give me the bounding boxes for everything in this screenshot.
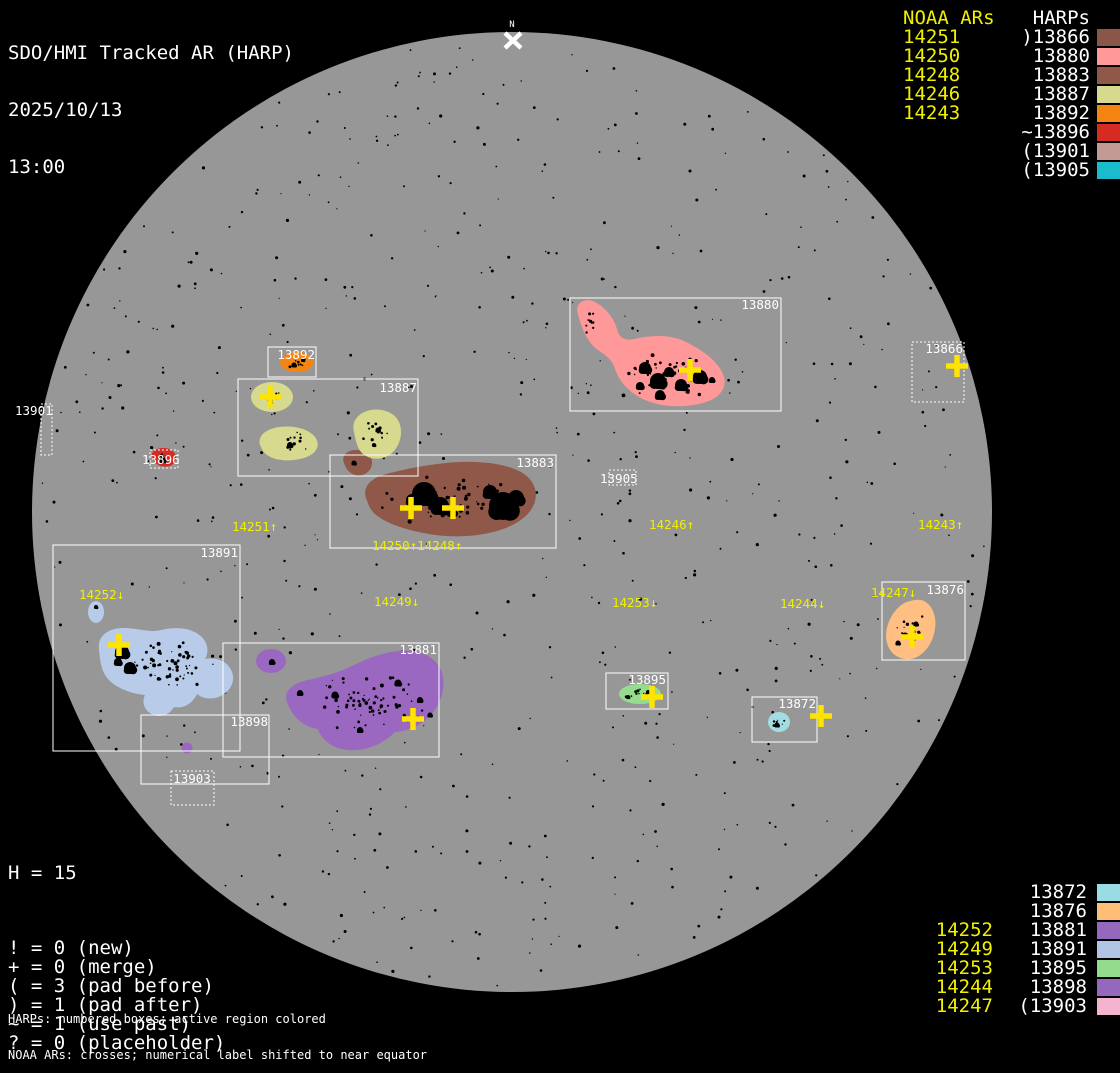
harp-box-label: 13903: [173, 771, 211, 786]
speckle: [234, 620, 237, 623]
speckle: [776, 644, 777, 645]
speckle: [847, 735, 849, 737]
speckle: [672, 253, 673, 254]
speckle: [747, 111, 749, 113]
speckle: [523, 268, 525, 270]
sunspot-speckle: [211, 655, 214, 658]
region-blob: [182, 743, 193, 754]
speckle: [632, 580, 634, 582]
speckle: [718, 848, 720, 850]
sunspot-speckle: [380, 699, 382, 701]
sunspot-umbra: [693, 376, 701, 384]
speckle: [294, 277, 296, 279]
speckle: [849, 673, 851, 675]
sunspot-speckle: [428, 512, 430, 514]
speckle: [347, 411, 350, 414]
speckle: [133, 451, 136, 454]
sunspot-speckle: [407, 693, 409, 695]
speckle: [459, 47, 461, 49]
speckle: [736, 531, 738, 533]
speckle: [349, 138, 351, 140]
speckle: [171, 325, 174, 328]
speckle: [54, 566, 55, 567]
speckle: [325, 278, 328, 281]
speckle: [547, 252, 550, 255]
speckle: [270, 334, 272, 336]
speckle: [586, 70, 588, 72]
speckle: [354, 297, 357, 300]
sunspot-speckle: [466, 506, 469, 509]
speckle: [322, 870, 324, 872]
speckle: [492, 628, 493, 629]
speckle: [834, 378, 836, 380]
sunspot-speckle: [363, 699, 366, 702]
sunspot-speckle: [408, 520, 412, 524]
sunspot-speckle: [906, 623, 909, 626]
sunspot-speckle: [299, 437, 302, 440]
speckle: [883, 275, 885, 277]
speckle: [119, 300, 120, 301]
speckle: [471, 648, 474, 651]
speckle: [654, 830, 657, 833]
color-swatch: [1097, 884, 1120, 901]
speckle: [348, 437, 351, 440]
sunspot-speckle: [342, 682, 344, 684]
speckle: [587, 391, 590, 394]
sunspot-speckle: [175, 677, 179, 681]
speckle: [849, 362, 852, 365]
sunspot-speckle: [305, 448, 306, 449]
sunspot-speckle: [651, 353, 655, 357]
sunspot-speckle: [187, 654, 190, 657]
speckle: [495, 166, 497, 168]
speckle: [507, 600, 510, 603]
speckle: [603, 780, 605, 782]
sunspot-speckle: [371, 438, 374, 441]
speckle: [613, 540, 615, 542]
speckle: [635, 451, 637, 453]
speckle: [116, 482, 118, 484]
speckle: [725, 153, 726, 154]
sunspot-speckle: [481, 503, 484, 506]
speckle: [241, 597, 243, 599]
speckle: [542, 170, 544, 172]
sunspot-speckle: [462, 479, 466, 483]
speckle: [288, 728, 290, 730]
speckle: [851, 830, 852, 831]
sunspot-speckle: [182, 678, 184, 680]
speckle: [329, 613, 331, 615]
speckle: [551, 677, 553, 679]
speckle: [938, 719, 940, 721]
speckle: [679, 234, 680, 235]
sunspot-speckle: [374, 423, 377, 426]
sunspot-speckle: [182, 655, 185, 658]
speckle: [556, 432, 558, 434]
speckle: [544, 918, 546, 920]
sunspot-speckle: [191, 672, 194, 675]
legend-bottom-right: 1387213876142521388114249138911425313895…: [933, 883, 1120, 1016]
sunspot-speckle: [447, 496, 450, 499]
speckle: [369, 813, 371, 815]
region-blob: [88, 601, 104, 623]
speckle: [394, 115, 396, 117]
speckle: [166, 567, 168, 569]
speckle: [298, 585, 300, 587]
sunspot-speckle: [373, 714, 375, 716]
speckle: [351, 286, 353, 288]
speckle: [655, 723, 657, 725]
speckle: [194, 287, 196, 289]
speckle: [479, 224, 481, 226]
sunspot-speckle: [695, 359, 698, 362]
speckle: [268, 469, 270, 471]
sunspot-umbra: [626, 697, 628, 699]
speckle: [166, 735, 167, 736]
speckle: [216, 372, 218, 374]
speckle: [343, 286, 346, 289]
speckle: [379, 788, 381, 790]
speckle: [834, 533, 836, 535]
speckle: [246, 563, 248, 565]
speckle: [896, 783, 898, 785]
speckle: [542, 558, 543, 559]
sunspot-speckle: [168, 667, 171, 670]
swatch-spacer: [1097, 10, 1120, 27]
speckle: [172, 231, 174, 233]
speckle: [949, 454, 951, 456]
speckle: [775, 680, 778, 683]
speckle: [175, 442, 176, 443]
sunspot-speckle: [189, 665, 190, 666]
speckle: [466, 795, 469, 798]
speckle: [279, 298, 280, 299]
speckle: [971, 593, 974, 596]
sunspot-speckle: [425, 476, 428, 479]
speckle: [93, 352, 95, 354]
speckle: [810, 655, 813, 658]
speckle: [578, 537, 581, 540]
speckle: [376, 140, 378, 142]
sunspot-umbra: [291, 365, 294, 368]
speckle: [526, 359, 527, 360]
speckle: [282, 324, 285, 327]
speckle: [478, 306, 481, 309]
speckle: [344, 930, 347, 933]
sunspot-speckle: [166, 675, 169, 678]
speckle: [308, 131, 311, 134]
speckle: [477, 957, 480, 960]
sunspot-speckle: [634, 374, 636, 376]
sunspot-speckle: [149, 674, 152, 677]
speckle: [415, 850, 418, 853]
speckle: [162, 367, 164, 369]
harp-box-label: 13887: [379, 380, 417, 395]
speckle: [710, 620, 711, 621]
speckle: [967, 580, 970, 583]
speckle: [826, 821, 827, 822]
speckle: [453, 141, 455, 143]
speckle: [463, 212, 465, 214]
speckle: [125, 315, 127, 317]
speckle: [683, 123, 686, 126]
speckle: [370, 808, 372, 810]
speckle: [349, 354, 352, 357]
speckle: [531, 302, 533, 304]
color-swatch: [1097, 960, 1120, 977]
speckle: [774, 514, 777, 517]
date-label: 2025/10/13: [8, 101, 294, 120]
sunspot-speckle: [773, 720, 775, 722]
noaa-ar-number: 14243: [903, 104, 996, 123]
sunspot-speckle: [631, 695, 633, 697]
sunspot-speckle: [176, 669, 179, 672]
sunspot-speckle: [353, 691, 356, 694]
speckle: [587, 459, 590, 462]
speckle: [810, 670, 812, 672]
sunspot-speckle: [587, 319, 589, 321]
speckle: [757, 759, 759, 761]
speckle: [828, 297, 831, 300]
sunspot-umbra: [287, 444, 291, 448]
sunspot-speckle: [585, 331, 587, 333]
speckle: [271, 895, 274, 898]
speckle: [829, 402, 831, 404]
speckle: [689, 488, 692, 491]
sunspot-speckle: [465, 495, 468, 498]
harp-number: (13905: [996, 161, 1090, 180]
noaa-ar-label: 14243↑: [918, 517, 963, 532]
speckle: [194, 731, 196, 733]
sunspot-speckle: [384, 710, 387, 713]
footnote-noaa: NOAA ARs: crosses; numerical label shift…: [8, 1049, 427, 1061]
sunspot-speckle: [592, 327, 594, 329]
sunspot-speckle: [289, 365, 292, 368]
speckle: [637, 330, 639, 332]
sunspot-speckle: [622, 394, 626, 398]
sunspot-speckle: [458, 483, 461, 486]
speckle: [830, 564, 833, 567]
speckle: [451, 940, 453, 942]
speckle: [56, 429, 59, 432]
speckle: [586, 259, 588, 261]
speckle: [924, 425, 926, 427]
speckle: [265, 698, 267, 700]
sunspot-umbra: [483, 491, 491, 499]
sunspot-speckle: [152, 659, 155, 662]
sunspot-speckle: [368, 700, 369, 701]
speckle: [405, 806, 407, 808]
speckle: [318, 174, 320, 176]
speckle: [115, 748, 118, 751]
speckle: [315, 534, 316, 535]
speckle: [572, 455, 573, 456]
speckle: [472, 59, 473, 60]
speckle: [602, 652, 605, 655]
speckle: [356, 513, 358, 515]
speckle: [427, 285, 429, 287]
noaa-ar-label: 14250↑14248↑: [372, 538, 462, 553]
speckle: [152, 328, 154, 330]
speckle: [954, 676, 956, 678]
speckle: [178, 285, 181, 288]
harp-box-label: 13892: [277, 347, 315, 362]
speckle: [928, 370, 930, 372]
speckle: [637, 142, 638, 143]
speckle: [149, 586, 150, 587]
speckle: [492, 764, 494, 766]
speckle: [857, 623, 860, 626]
speckle: [298, 181, 301, 184]
harp-box-label: 13891: [200, 545, 238, 560]
speckle: [376, 961, 378, 963]
speckle: [567, 299, 569, 301]
speckle: [662, 803, 665, 806]
speckle: [847, 181, 848, 182]
speckle: [929, 287, 932, 290]
speckle: [338, 938, 339, 939]
speckle: [752, 493, 753, 494]
speckle: [397, 82, 399, 84]
color-swatch: [1097, 48, 1120, 65]
speckle: [787, 151, 789, 153]
speckle: [803, 175, 806, 178]
sunspot-speckle: [171, 651, 172, 652]
harp-box-label: 13880: [741, 297, 779, 312]
speckle: [285, 580, 287, 582]
speckle: [850, 637, 853, 640]
sunspot-speckle: [393, 696, 396, 699]
speckle: [769, 640, 771, 642]
speckle: [800, 226, 802, 228]
speckle: [183, 724, 185, 726]
speckle: [546, 577, 547, 578]
speckle: [289, 651, 292, 654]
speckle: [629, 492, 632, 495]
speckle: [235, 648, 237, 650]
harp-box-label: 13881: [399, 642, 437, 657]
sunspot-speckle: [143, 666, 147, 670]
sunspot-speckle: [585, 325, 587, 327]
color-swatch: [1097, 162, 1120, 179]
speckle: [765, 213, 767, 215]
sunspot-speckle: [358, 700, 361, 703]
sunspot-speckle: [357, 721, 360, 724]
speckle: [718, 916, 721, 919]
sunspot-umbra: [124, 667, 131, 674]
sunspot-speckle: [179, 675, 181, 677]
speckle: [433, 72, 436, 75]
speckle: [429, 123, 431, 125]
speckle: [970, 605, 972, 607]
speckle: [922, 389, 923, 390]
speckle: [737, 381, 740, 384]
speckle: [452, 785, 455, 788]
speckle: [569, 520, 570, 521]
speckle: [438, 175, 440, 177]
speckle: [309, 194, 310, 195]
speckle: [190, 261, 193, 264]
speckle: [328, 201, 330, 203]
color-swatch: [1097, 998, 1120, 1015]
speckle: [558, 936, 559, 937]
sunspot-speckle: [195, 683, 198, 686]
speckle: [697, 925, 700, 928]
speckle: [344, 127, 346, 129]
speckle: [247, 454, 250, 457]
speckle: [391, 970, 394, 973]
speckle: [860, 335, 863, 338]
speckle: [557, 118, 559, 120]
speckle: [629, 489, 631, 491]
speckle: [608, 128, 610, 130]
speckle: [845, 199, 847, 201]
speckle: [162, 371, 165, 374]
speckle: [617, 502, 620, 505]
sunspot-speckle: [477, 503, 480, 506]
speckle: [418, 75, 420, 77]
sunspot-speckle: [377, 697, 379, 699]
speckle: [874, 386, 877, 389]
time-label: 13:00: [8, 158, 294, 177]
sunspot-speckle: [332, 680, 333, 681]
speckle: [353, 834, 355, 836]
speckle: [769, 822, 771, 824]
speckle: [778, 500, 779, 501]
speckle: [628, 519, 631, 522]
speckle: [241, 875, 243, 877]
speckle: [274, 412, 276, 414]
speckle: [423, 355, 425, 357]
sunspot-speckle: [497, 490, 499, 492]
speckle: [79, 411, 81, 413]
legend-row: 14247(13903: [933, 997, 1120, 1016]
noaa-ar-label: 14247↓: [871, 585, 916, 600]
sunspot-speckle: [184, 674, 185, 675]
title-block: SDO/HMI Tracked AR (HARP) 2025/10/13 13:…: [8, 6, 294, 196]
sunspot-speckle: [142, 659, 144, 661]
speckle: [373, 912, 375, 914]
sunspot-umbra: [331, 694, 335, 698]
speckle: [142, 734, 145, 737]
speckle: [284, 526, 286, 528]
sunspot-speckle: [371, 709, 374, 712]
noaa-ar-label: 14244↓: [780, 596, 825, 611]
sunspot-speckle: [669, 363, 672, 366]
speckle: [786, 342, 787, 343]
speckle: [520, 381, 523, 384]
harp-box-label: 13905: [600, 471, 638, 486]
sunspot-speckle: [673, 366, 676, 369]
sunspot-speckle: [289, 448, 291, 450]
speckle: [267, 535, 270, 538]
speckle: [103, 268, 105, 270]
speckle: [813, 362, 816, 365]
speckle: [821, 664, 823, 666]
speckle: [693, 936, 696, 939]
speckle: [434, 81, 435, 82]
sunspot-speckle: [360, 715, 361, 716]
sunspot-umbra: [664, 371, 670, 377]
speckle: [935, 386, 937, 388]
sunspot-speckle: [591, 322, 593, 324]
speckle: [644, 722, 647, 725]
speckle: [308, 483, 310, 485]
speckle: [101, 407, 103, 409]
speckle: [689, 457, 690, 458]
speckle: [671, 691, 673, 693]
sunspot-speckle: [395, 705, 398, 708]
